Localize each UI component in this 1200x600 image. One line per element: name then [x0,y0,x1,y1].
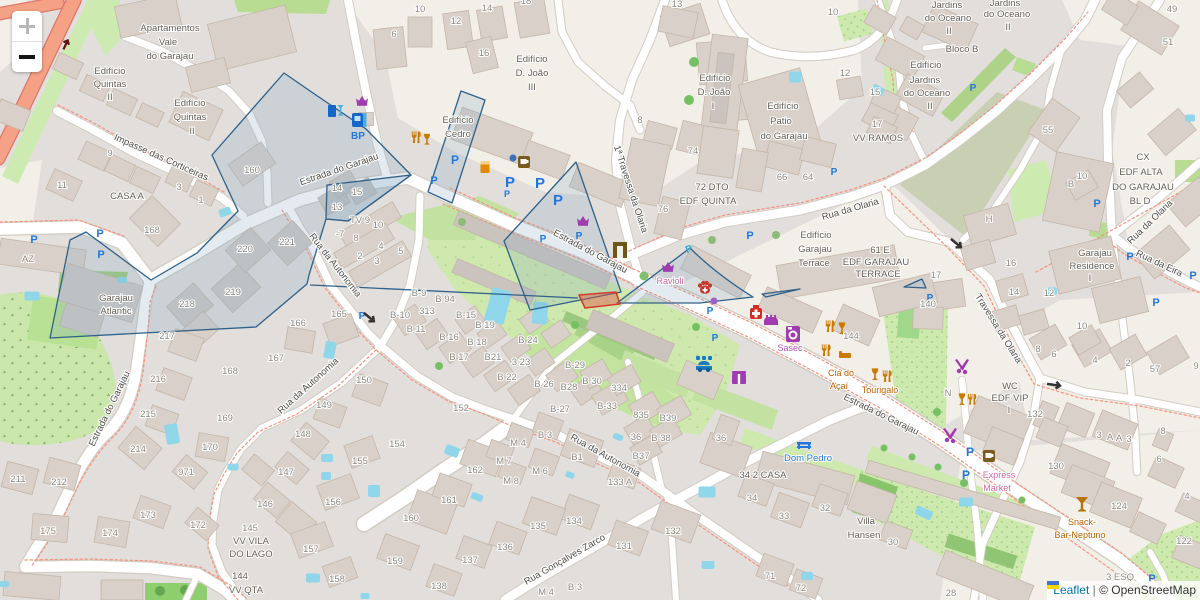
svg-text:6: 6 [391,29,396,40]
svg-text:12: 12 [840,68,851,79]
svg-text:55: 55 [1043,125,1054,136]
svg-text:168: 168 [222,366,238,377]
svg-text:146: 146 [257,499,273,510]
svg-text:Patio: Patio [770,116,792,127]
svg-text:P: P [1152,297,1159,309]
svg-text:74: 74 [688,146,699,157]
svg-text:P: P [966,445,974,459]
svg-text:148: 148 [295,429,311,440]
svg-text:II: II [107,92,112,103]
svg-text:AZ: AZ [22,254,34,265]
svg-text:14: 14 [1009,287,1020,298]
svg-text:9: 9 [107,148,112,159]
svg-text:B 16: B 16 [439,332,459,343]
svg-text:B-15: B-15 [456,310,476,321]
svg-text:16: 16 [1006,258,1017,269]
svg-text:II: II [946,26,951,37]
svg-text:172: 172 [190,520,206,531]
svg-text:17: 17 [872,119,883,130]
svg-text:P: P [96,228,103,240]
svg-text:13: 13 [332,202,343,213]
svg-text:Atlantic: Atlantic [100,306,131,317]
svg-text:Jardins: Jardins [910,75,941,86]
svg-text:B-33: B-33 [597,401,617,412]
svg-text:Villa: Villa [857,516,875,527]
svg-text:P: P [553,192,563,209]
svg-text:835: 835 [633,410,649,421]
svg-text:3: 3 [1126,434,1131,445]
svg-text:B 30: B 30 [582,376,602,387]
svg-text:14: 14 [332,183,343,194]
svg-text:219: 219 [225,287,241,298]
svg-text:66: 66 [777,172,788,183]
svg-text:EDF VIP: EDF VIP [992,393,1029,404]
svg-text:Edifício: Edifício [174,98,205,109]
svg-text:174: 174 [102,528,118,539]
svg-text:P: P [1126,251,1133,263]
svg-text:36: 36 [631,432,642,443]
svg-text:138: 138 [431,581,447,592]
svg-text:157: 157 [303,544,319,555]
svg-text:VV QTA: VV QTA [229,585,264,596]
svg-text:71: 71 [765,571,776,582]
svg-text:154: 154 [389,439,405,450]
svg-text:15: 15 [352,187,363,198]
svg-text:216: 216 [150,374,166,385]
svg-text:III: III [528,82,536,93]
svg-text:6: 6 [1156,454,1161,465]
svg-text:130: 130 [1048,461,1064,472]
svg-text:76: 76 [658,204,669,215]
svg-text:Dom Pedro: Dom Pedro [784,453,832,464]
svg-text:1: 1 [198,195,203,206]
svg-text:6: 6 [1051,349,1056,360]
svg-text:Cia do: Cia do [828,368,854,378]
svg-text:Jardins: Jardins [932,0,963,11]
svg-text:3: 3 [374,256,379,267]
svg-text:II: II [927,101,932,112]
svg-text:215: 215 [140,409,156,420]
svg-text:137: 137 [462,555,478,566]
svg-text:13: 13 [672,0,683,10]
svg-text:36: 36 [716,433,727,444]
svg-text:217: 217 [159,331,175,342]
svg-text:3: 3 [1096,430,1101,441]
svg-text:72: 72 [796,583,807,594]
svg-text:TV 9: TV 9 [350,215,370,226]
svg-text:P: P [451,153,459,167]
svg-text:8: 8 [1160,426,1165,437]
svg-text:B 3: B 3 [568,582,582,593]
svg-text:B: B [1068,179,1074,190]
svg-text:Garajau: Garajau [1078,248,1112,259]
svg-text:221: 221 [279,237,295,248]
svg-text:Snack-: Snack- [1068,517,1096,527]
svg-text:28: 28 [946,588,957,599]
svg-text:212: 212 [51,477,67,488]
svg-text:133 A: 133 A [608,477,633,488]
svg-text:211: 211 [10,474,25,485]
svg-text:EDF ALTA: EDF ALTA [1119,167,1163,178]
svg-text:18: 18 [521,0,532,7]
svg-text:218: 218 [179,299,195,310]
svg-text:12: 12 [451,16,462,27]
svg-text:170: 170 [202,442,218,453]
svg-text:I: I [1008,405,1011,416]
svg-text:49: 49 [1167,4,1178,15]
svg-text:134: 134 [566,516,582,527]
svg-text:Jardins: Jardins [990,0,1021,9]
svg-text:61 E: 61 E [870,245,890,256]
svg-text:34: 34 [747,493,758,504]
svg-text:168: 168 [144,225,160,236]
svg-text:Market: Market [983,483,1011,493]
svg-text:Tourigalo: Tourigalo [862,385,899,395]
svg-text:B 26: B 26 [534,379,554,390]
svg-text:8: 8 [353,233,358,244]
svg-text:Bloco B: Bloco B [946,44,979,55]
svg-text:313: 313 [419,306,435,317]
svg-text:P: P [970,83,977,94]
svg-text:122: 122 [1176,536,1192,547]
svg-text:D. João: D. João [698,87,731,98]
svg-text:EDF GARAJAU: EDF GARAJAU [843,257,910,268]
svg-text:WC: WC [1002,381,1018,392]
svg-text:B39: B39 [660,413,677,424]
svg-text:51: 51 [1163,37,1174,48]
svg-text:P: P [1093,198,1100,210]
svg-text:Bar-Neptuno: Bar-Neptuno [1054,530,1105,540]
svg-text:P: P [746,230,753,242]
svg-text:VV VILA: VV VILA [233,536,270,547]
svg-text:173: 173 [140,510,156,521]
svg-text:3 23: 3 23 [512,357,531,368]
svg-text:8: 8 [1035,344,1040,355]
svg-text:220: 220 [237,244,253,255]
svg-text:B 19: B 19 [475,320,495,331]
svg-text:P: P [712,333,719,344]
svg-text:P: P [707,306,714,317]
svg-text:10: 10 [373,220,384,231]
svg-text:2: 2 [357,251,362,262]
svg-text:4: 4 [378,241,383,252]
svg-text:169: 169 [217,413,233,424]
svg-text:P: P [504,189,510,199]
svg-text:M 7: M 7 [496,456,512,467]
svg-text:167: 167 [268,353,284,364]
svg-text:152: 152 [453,403,469,414]
svg-text:214: 214 [130,444,146,455]
svg-text:30: 30 [888,537,899,548]
svg-text:TERRACE: TERRACE [855,269,900,280]
svg-text:165: 165 [331,309,347,320]
svg-text:72 DTO: 72 DTO [695,182,728,193]
svg-text:11: 11 [57,180,67,191]
svg-text:Ravioli: Ravioli [656,276,683,286]
svg-text:3: 3 [176,182,181,193]
svg-text:2: 2 [1125,358,1130,369]
svg-text:B28: B28 [561,382,578,393]
svg-text:162: 162 [467,465,483,476]
svg-text:B21: B21 [485,352,502,363]
svg-text:B 18: B 18 [467,337,487,348]
svg-text:DO GARAJAU: DO GARAJAU [1112,182,1174,193]
svg-text:II: II [189,126,194,137]
svg-text:do Oceano: do Oceano [904,88,950,99]
svg-text:4: 4 [1184,491,1189,502]
svg-text:B 11: B 11 [407,324,426,335]
svg-text:B 94: B 94 [435,294,455,305]
svg-text:do Garajau: do Garajau [760,131,807,142]
svg-text:Edifício: Edifício [94,66,125,77]
svg-text:Açaí: Açaí [830,381,849,391]
svg-text:M 8: M 8 [503,476,519,487]
svg-text:B1: B1 [571,452,583,463]
svg-text:8: 8 [637,115,642,126]
svg-text:Edifício: Edifício [442,115,473,126]
svg-text:17: 17 [931,270,942,281]
svg-text:I: I [712,101,715,112]
svg-text:34 2 CASA: 34 2 CASA [740,470,788,481]
svg-text:132: 132 [1027,409,1043,420]
svg-text:B 17: B 17 [449,352,469,363]
svg-text:158: 158 [329,574,345,585]
svg-text:Garajau: Garajau [798,244,832,255]
svg-text:II: II [1005,22,1010,33]
svg-text:Garajau: Garajau [99,293,133,304]
svg-text:10: 10 [415,4,426,15]
svg-text:P: P [831,167,838,178]
svg-text:9: 9 [1193,361,1198,372]
svg-text:B-27: B-27 [550,404,570,415]
svg-text:155: 155 [352,456,368,467]
svg-text:H: H [986,214,993,225]
svg-text:Terrace: Terrace [798,258,830,269]
svg-text:Quintas: Quintas [174,112,207,123]
svg-text:136: 136 [497,542,513,553]
svg-text:CX: CX [1136,152,1150,163]
svg-text:Edifício: Edifício [767,101,798,112]
svg-text:B 3: B 3 [538,430,552,441]
svg-text:P: P [97,249,104,261]
svg-text:145: 145 [242,523,258,534]
svg-text:149: 149 [316,400,332,411]
svg-text:971: 971 [178,467,194,478]
svg-text:144: 144 [232,571,248,582]
svg-text:14: 14 [482,3,493,14]
svg-text:Quintas: Quintas [94,79,127,90]
svg-text:Residence: Residence [1070,261,1115,272]
svg-text:B-29: B-29 [565,360,585,371]
svg-text:175: 175 [40,526,56,537]
svg-text:16: 16 [479,48,490,59]
svg-text:Hansen: Hansen [848,530,881,541]
svg-text:N: N [945,388,952,399]
svg-text:33: 33 [779,511,790,522]
svg-text:CASA A: CASA A [110,191,144,202]
svg-text:P: P [30,234,37,246]
svg-text:Cedro: Cedro [445,129,471,140]
svg-text:do Garajau: do Garajau [146,51,193,62]
svg-text:135: 135 [530,521,546,532]
svg-text:12: 12 [1044,288,1055,299]
svg-text:P: P [1189,270,1196,282]
svg-text:57: 57 [1150,364,1161,375]
svg-text:64: 64 [803,172,814,183]
svg-text:B37: B37 [633,451,650,462]
svg-text:Edifício: Edifício [800,230,831,241]
svg-text:EDF QUINTA: EDF QUINTA [680,196,737,207]
svg-text:M 6: M 6 [532,466,548,477]
svg-text:P: P [430,175,437,187]
svg-text:B 24: B 24 [518,335,538,346]
svg-text:B 22: B 22 [497,372,517,383]
svg-text:140: 140 [920,299,936,310]
svg-text:334: 334 [611,383,627,394]
svg-text:4: 4 [1092,355,1097,366]
svg-text:15: 15 [870,87,881,98]
svg-text:Apartamentos: Apartamentos [140,23,199,34]
svg-text:147: 147 [278,467,294,478]
svg-text:124: 124 [1111,501,1127,512]
svg-text:32: 32 [820,503,831,514]
svg-text:10: 10 [828,7,839,18]
svg-text:Express: Express [983,470,1016,480]
svg-text:161: 161 [441,495,457,506]
svg-text:5: 5 [398,246,403,257]
svg-text:B-9: B-9 [412,288,427,299]
svg-text:A: A [1107,432,1114,443]
svg-text:156: 156 [325,497,341,508]
svg-text:-7: -7 [336,229,344,240]
svg-text:166: 166 [290,318,306,329]
svg-text:B 38: B 38 [651,433,671,444]
svg-text:144: 144 [843,331,859,342]
svg-text:DO LAGO: DO LAGO [229,549,272,560]
svg-text:10: 10 [1077,171,1088,182]
svg-text:160: 160 [403,513,419,524]
svg-text:Edifício: Edifício [699,73,730,84]
svg-text:P: P [540,234,547,245]
svg-text:D. João: D. João [516,68,549,79]
svg-text:A: A [1116,433,1123,444]
svg-text:Sasec: Sasec [777,343,803,353]
svg-text:150: 150 [356,375,372,386]
svg-text:do Oceano: do Oceano [984,9,1030,20]
svg-text:Vale: Vale [159,37,177,48]
svg-text:B-10: B-10 [390,310,410,321]
svg-text:M 4: M 4 [510,438,526,449]
svg-text:do Oceano: do Oceano [925,13,971,24]
svg-text:159: 159 [387,556,403,567]
svg-text:160: 160 [244,165,260,176]
svg-text:Edifício: Edifício [910,60,941,71]
svg-text:M 4: M 4 [538,587,554,598]
svg-text:VV RAMOS: VV RAMOS [853,133,903,144]
svg-text:BP: BP [351,131,365,142]
svg-text:10: 10 [1077,321,1088,332]
svg-text:I: I [1089,273,1092,284]
svg-text:132: 132 [665,526,681,537]
svg-text:Edifício: Edifício [516,54,547,65]
svg-text:BL D: BL D [1130,196,1151,207]
svg-text:131: 131 [616,541,632,552]
svg-text:P: P [535,175,545,192]
